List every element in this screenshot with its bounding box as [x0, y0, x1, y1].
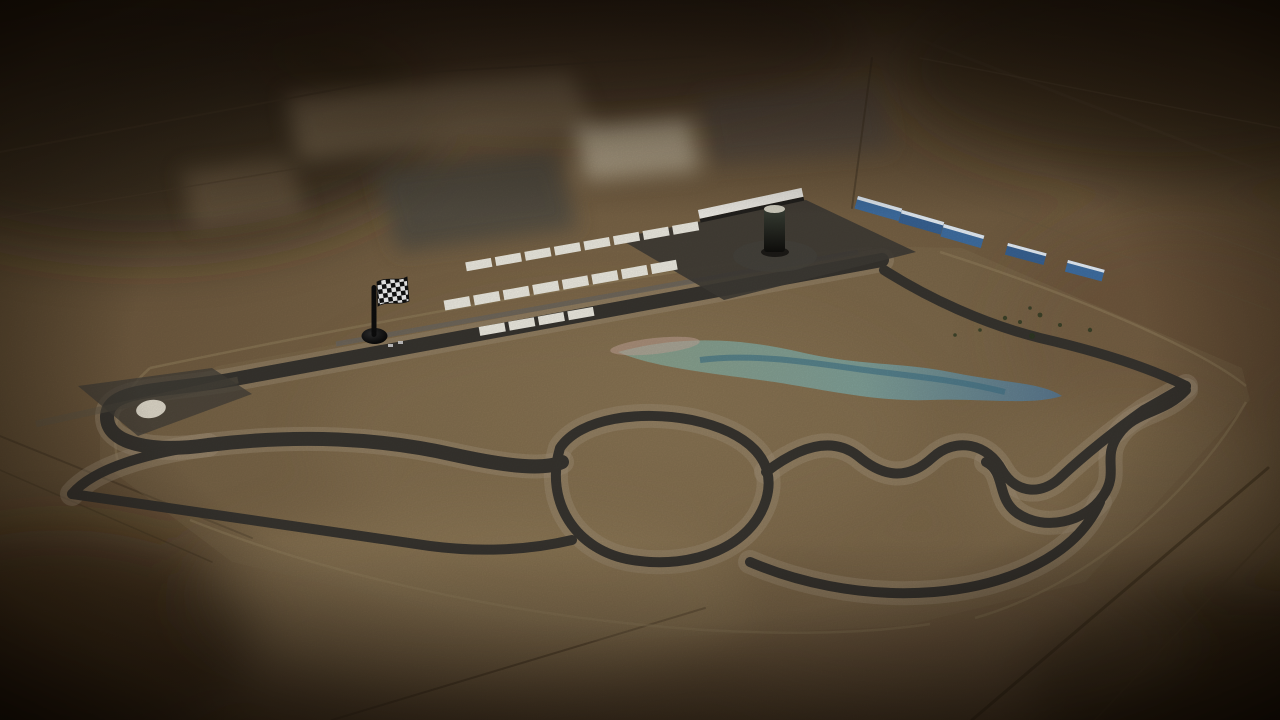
vignette-overlay	[0, 0, 1280, 720]
aerial-photo	[0, 0, 1280, 720]
circuit-scene	[0, 0, 1280, 720]
